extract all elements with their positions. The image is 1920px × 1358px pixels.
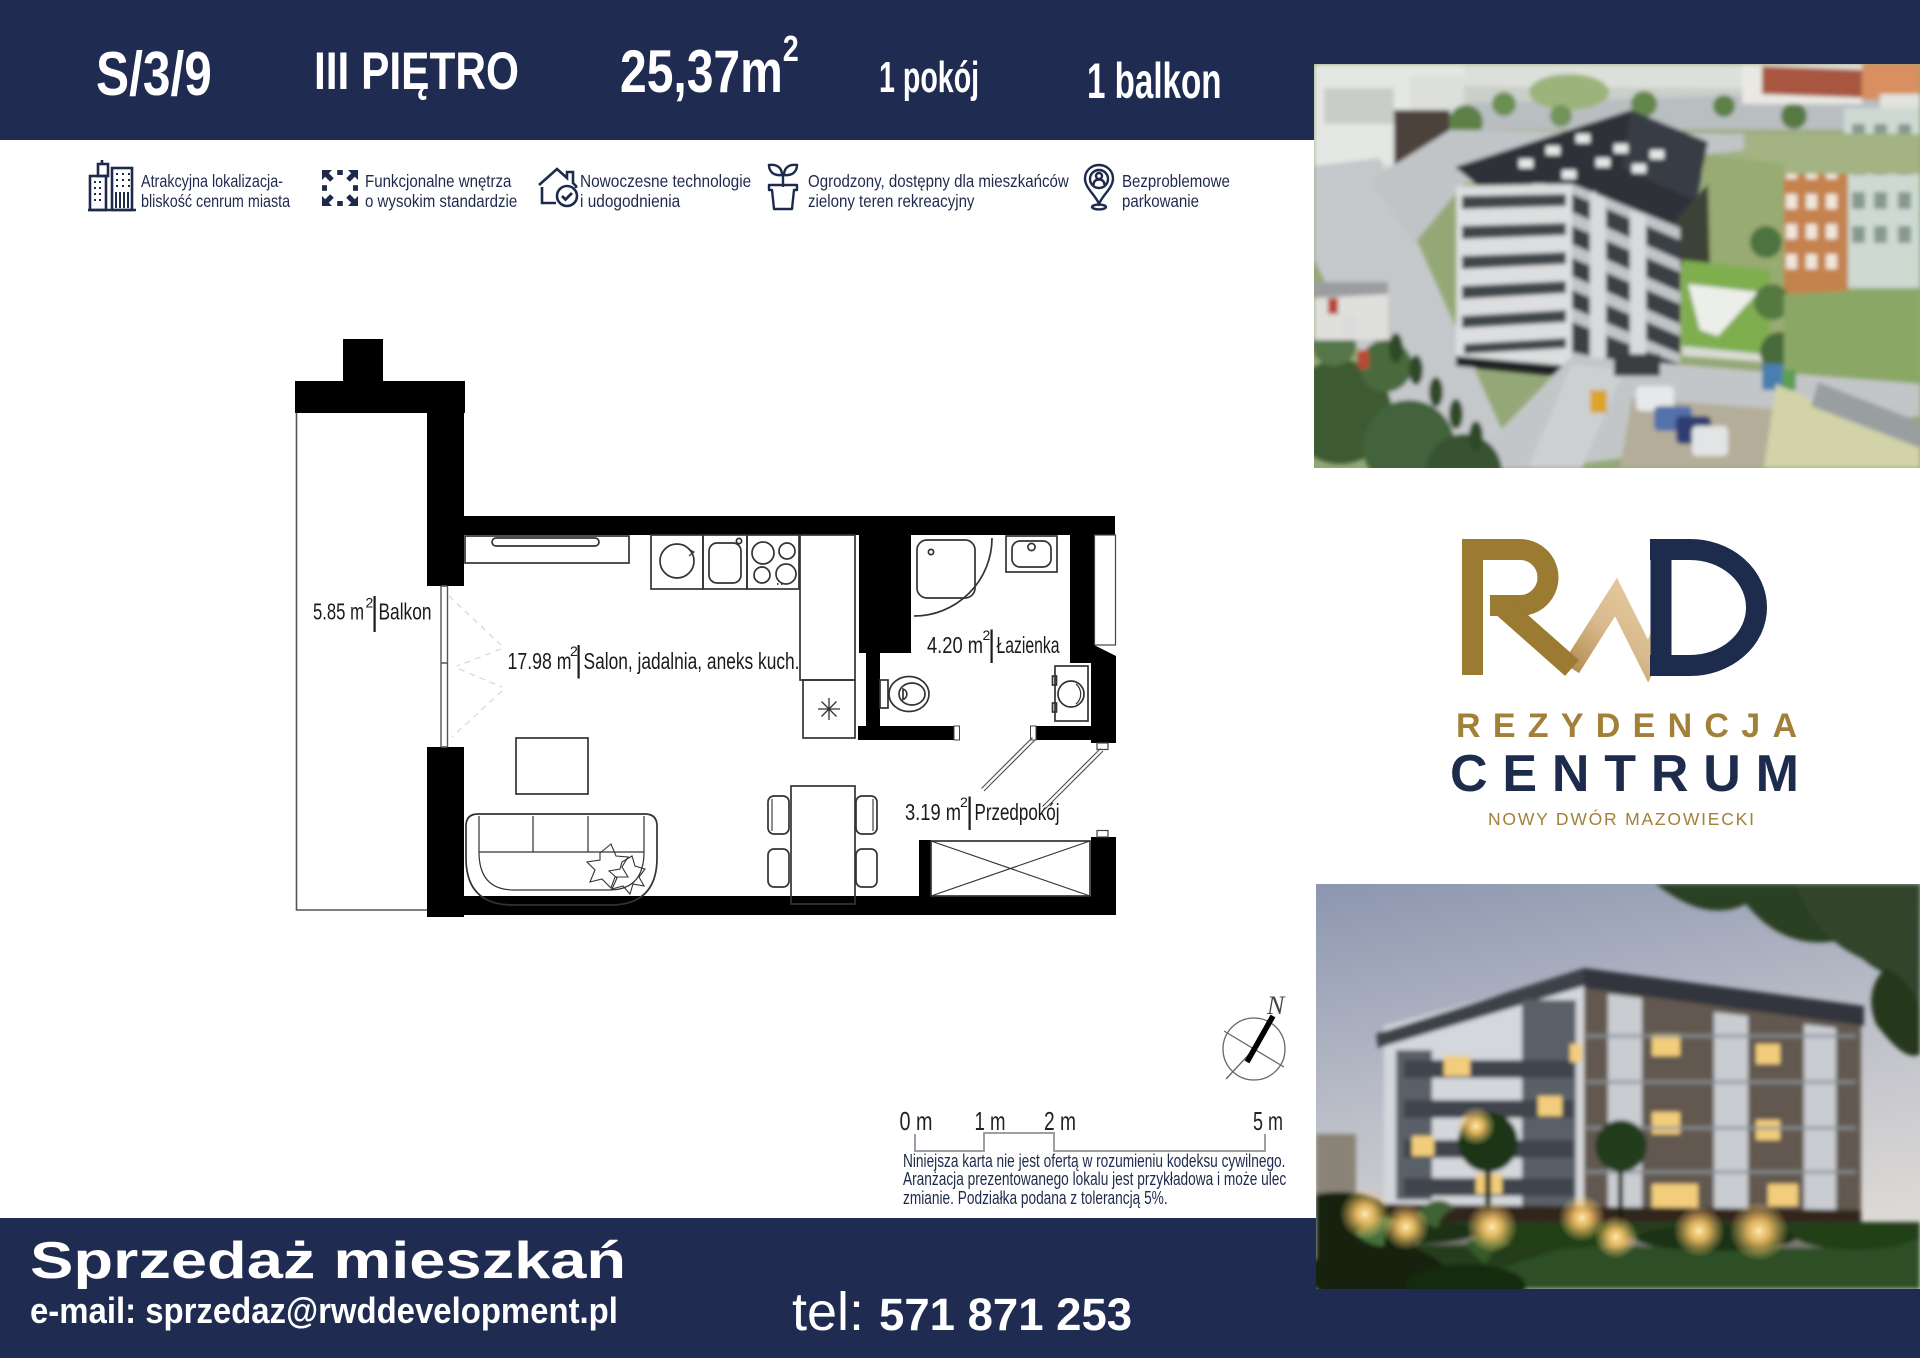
svg-text:2 m: 2 m	[1044, 1106, 1076, 1136]
svg-text:Łazienka: Łazienka	[997, 632, 1060, 658]
svg-text:2: 2	[983, 627, 991, 643]
svg-text:CENTRUM: CENTRUM	[1450, 745, 1799, 803]
svg-text:0 m: 0 m	[900, 1106, 933, 1136]
svg-text:2: 2	[570, 643, 578, 659]
svg-text:5.85 m: 5.85 m	[313, 599, 364, 625]
svg-text:NOWY DWÓR MAZOWIECKI: NOWY DWÓR MAZOWIECKI	[1488, 808, 1754, 829]
svg-text:2: 2	[366, 595, 374, 611]
svg-text:5 m: 5 m	[1253, 1106, 1283, 1136]
svg-text:17.98 m: 17.98 m	[508, 648, 572, 674]
svg-text:Salon, jadalnia, aneks kuch.: Salon, jadalnia, aneks kuch.	[584, 648, 800, 674]
svg-text:1 m: 1 m	[975, 1106, 1006, 1136]
svg-text:Przedpokój: Przedpokój	[975, 799, 1060, 825]
svg-text:3.19 m: 3.19 m	[905, 799, 961, 825]
svg-text:REZYDENCJA: REZYDENCJA	[1456, 707, 1797, 745]
svg-text:4.20 m: 4.20 m	[927, 632, 983, 658]
svg-text:Balkon: Balkon	[379, 599, 432, 625]
svg-text:N: N	[1266, 991, 1286, 1020]
svg-text:2: 2	[960, 794, 968, 810]
